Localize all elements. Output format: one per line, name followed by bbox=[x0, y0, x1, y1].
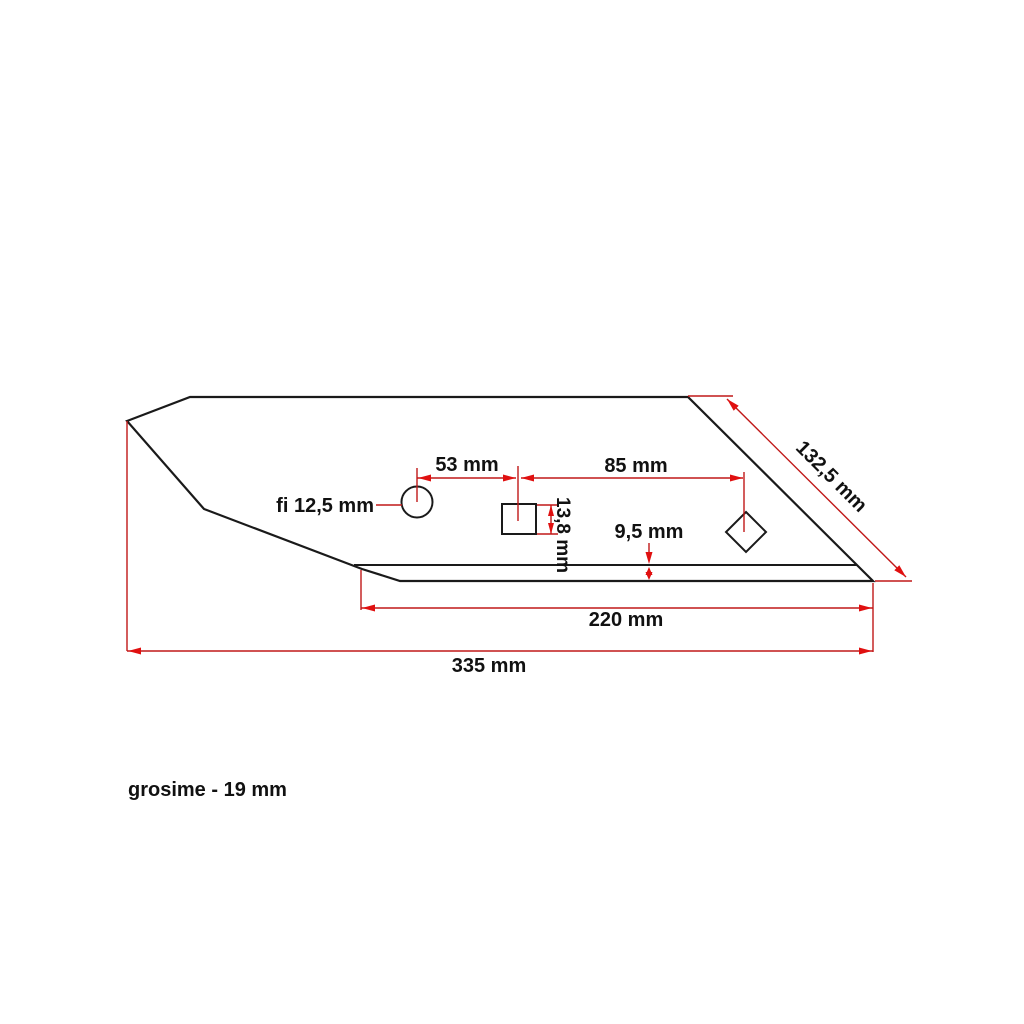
arrowhead-9-5-down bbox=[646, 552, 653, 564]
arrowhead-335-left bbox=[128, 648, 141, 655]
arrowhead-335-right bbox=[859, 648, 872, 655]
arrowhead-85-left bbox=[521, 475, 534, 482]
dimension-line-132-5 bbox=[727, 399, 906, 577]
label-53-mm: 53 mm bbox=[435, 454, 498, 476]
label-thickness-note: grosime - 19 mm bbox=[128, 779, 287, 801]
technical-drawing-page: 53 mm 85 mm fi 12,5 mm 13,8 mm 9,5 mm 13… bbox=[0, 0, 1024, 1024]
arrowhead-85-right bbox=[730, 475, 743, 482]
diamond-hole bbox=[726, 512, 766, 552]
label-85-mm: 85 mm bbox=[604, 455, 667, 477]
label-220-mm: 220 mm bbox=[589, 609, 664, 631]
label-132-5-mm: 132,5 mm bbox=[791, 437, 871, 517]
arrowhead-53-left bbox=[418, 475, 431, 482]
label-335-mm: 335 mm bbox=[452, 655, 527, 677]
arrowhead-220-right bbox=[859, 605, 872, 612]
arrowhead-220-left bbox=[362, 605, 375, 612]
label-13-8-mm: 13,8 mm bbox=[552, 497, 573, 573]
blade-dimension-drawing: 53 mm 85 mm fi 12,5 mm 13,8 mm 9,5 mm 13… bbox=[0, 0, 1024, 1024]
square-hole bbox=[502, 504, 536, 534]
arrowhead-53-right bbox=[503, 475, 516, 482]
label-9-5-mm: 9,5 mm bbox=[615, 521, 684, 543]
arrowhead-gap-down bbox=[646, 572, 653, 580]
label-fi-12-5-mm: fi 12,5 mm bbox=[276, 495, 374, 517]
blade-outline bbox=[127, 397, 873, 581]
